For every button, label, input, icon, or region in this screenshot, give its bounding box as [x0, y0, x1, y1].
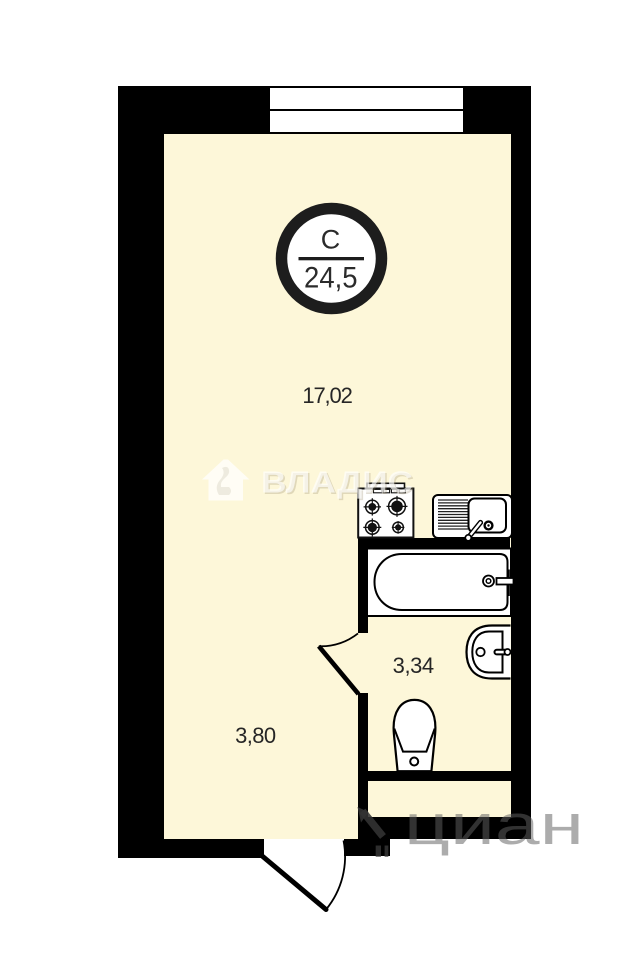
svg-text:17,02: 17,02	[302, 383, 353, 408]
svg-text:24,5: 24,5	[304, 262, 358, 295]
svg-text:3,34: 3,34	[393, 653, 435, 678]
svg-text:циан: циан	[404, 793, 584, 857]
svg-text:ВЛАДИС: ВЛАДИС	[261, 465, 413, 500]
svg-text:С: С	[321, 225, 341, 255]
svg-text:3,80: 3,80	[235, 723, 276, 748]
